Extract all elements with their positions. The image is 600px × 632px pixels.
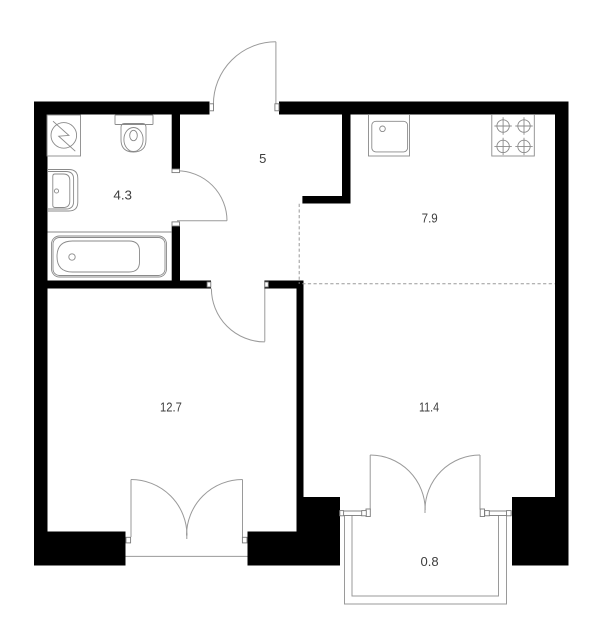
svg-text:7.9: 7.9 xyxy=(422,211,438,226)
svg-text:12.7: 12.7 xyxy=(160,400,182,415)
svg-text:0.8: 0.8 xyxy=(421,554,439,569)
svg-text:5: 5 xyxy=(259,151,266,166)
svg-text:4.3: 4.3 xyxy=(113,187,132,202)
svg-text:11.4: 11.4 xyxy=(419,400,439,415)
